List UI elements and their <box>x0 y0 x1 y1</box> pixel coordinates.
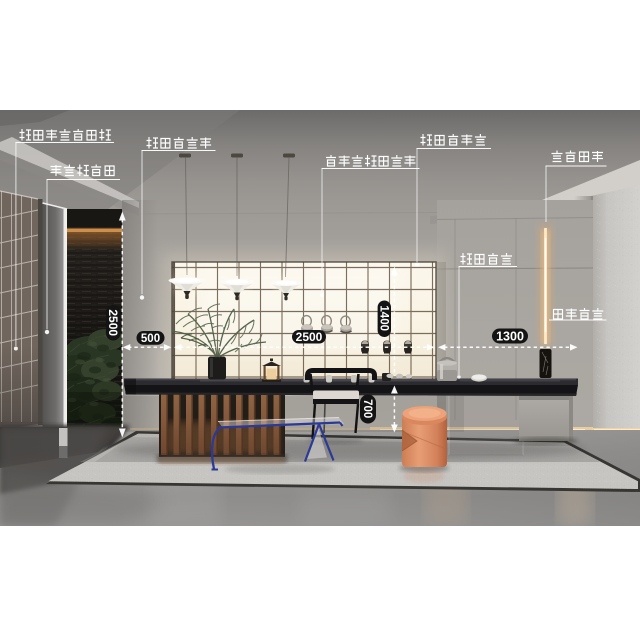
svg-text:2500: 2500 <box>296 330 323 344</box>
svg-text:700: 700 <box>361 399 373 418</box>
svg-text:1300: 1300 <box>496 329 524 343</box>
svg-text:1400: 1400 <box>378 305 390 331</box>
svg-text:500: 500 <box>141 333 160 345</box>
svg-text:2500: 2500 <box>106 309 120 336</box>
